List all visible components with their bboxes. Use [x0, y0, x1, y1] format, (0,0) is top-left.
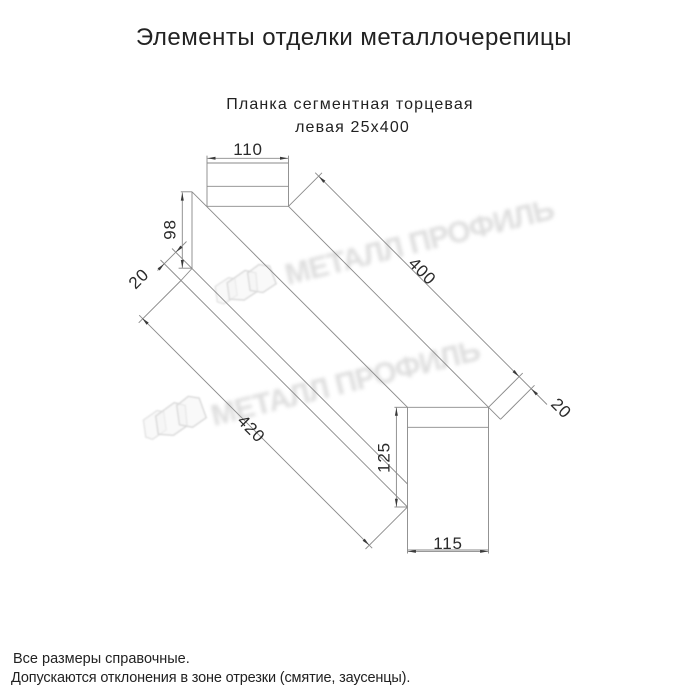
svg-text:125: 125	[375, 442, 394, 473]
svg-text:110: 110	[233, 140, 263, 159]
svg-text:115: 115	[433, 534, 463, 553]
svg-text:20: 20	[547, 394, 575, 422]
svg-text:20: 20	[125, 265, 153, 293]
svg-text:98: 98	[161, 219, 180, 240]
